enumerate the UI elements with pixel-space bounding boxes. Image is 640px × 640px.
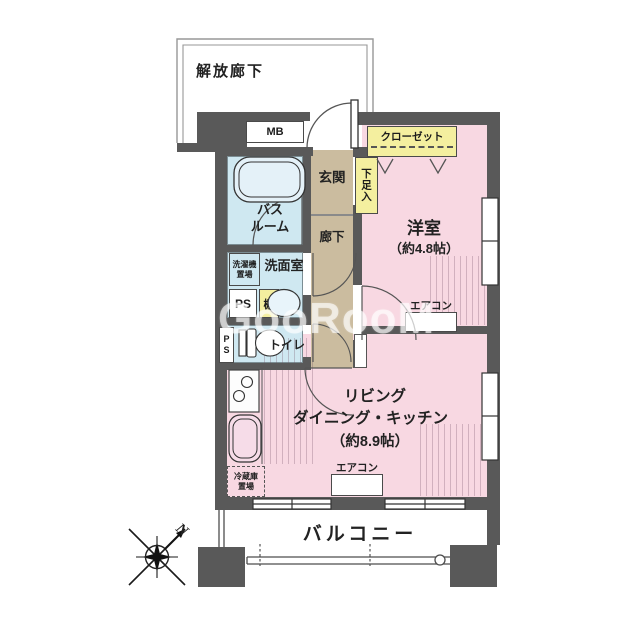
ldk-label-3: （約8.9帖） bbox=[300, 430, 440, 451]
entrance-label: 玄関 bbox=[311, 166, 353, 186]
floor-plan-canvas: MB クローゼット 下足入 洗濯機 置場 PS 棚 PS 冷蔵庫 置場 bbox=[0, 0, 640, 640]
closet-box: クローゼット bbox=[367, 126, 457, 157]
watermark: GooRooM bbox=[218, 294, 435, 344]
corridor-label: 廊下 bbox=[311, 226, 353, 245]
fridge-label-1: 冷蔵庫 bbox=[234, 472, 258, 482]
washroom-label: 洗面室 bbox=[256, 255, 312, 274]
aircon-label-ldk: エアコン bbox=[324, 460, 390, 475]
aircon-box-ldk bbox=[331, 474, 383, 496]
balcony-label: バルコニー bbox=[275, 519, 445, 546]
wall-pillar-top-left bbox=[197, 112, 247, 147]
wall-sep-toilet-ldk bbox=[227, 363, 311, 370]
ldk-label-1: リビング bbox=[310, 384, 440, 406]
meter-box-label: MB bbox=[266, 126, 283, 138]
washer-label-2: 置場 bbox=[237, 270, 253, 280]
wall-western-left-a bbox=[353, 205, 362, 285]
wall-top-right bbox=[358, 112, 500, 125]
shoe-box: 下足入 bbox=[355, 157, 378, 214]
wall-sep-bath-washroom bbox=[227, 245, 311, 252]
balcony-partition-marks bbox=[260, 544, 370, 566]
wall-mb-top bbox=[242, 112, 310, 121]
western-room-name: 洋室 bbox=[372, 214, 476, 239]
wall-entrance-top bbox=[295, 147, 313, 156]
closet-label: クローゼット bbox=[381, 129, 444, 144]
bathroom-label-2: ルーム bbox=[238, 216, 302, 235]
wall-entrance-left-a bbox=[303, 150, 311, 253]
western-room-size: （約4.8帖） bbox=[366, 238, 482, 257]
wall-bottom bbox=[215, 497, 500, 510]
ldk-label-2: ダイニング・キッチン bbox=[278, 406, 463, 428]
balcony-pillar-right bbox=[450, 545, 497, 587]
closet-hanger-pipe bbox=[371, 145, 453, 148]
washer-label-1: 洗濯機 bbox=[233, 260, 257, 270]
wall-right bbox=[487, 125, 500, 545]
meter-box: MB bbox=[246, 121, 304, 143]
shoe-box-label: 下足入 bbox=[359, 168, 374, 203]
fridge-space-box: 冷蔵庫 置場 bbox=[227, 466, 265, 497]
balcony-pillar-left bbox=[198, 547, 245, 587]
fridge-label-2: 置場 bbox=[238, 482, 254, 492]
entrance-door bbox=[307, 100, 358, 148]
entrance-step-line bbox=[311, 214, 353, 216]
compass-north-label: N bbox=[172, 521, 191, 541]
open-corridor-label: 解放廊下 bbox=[196, 60, 264, 81]
